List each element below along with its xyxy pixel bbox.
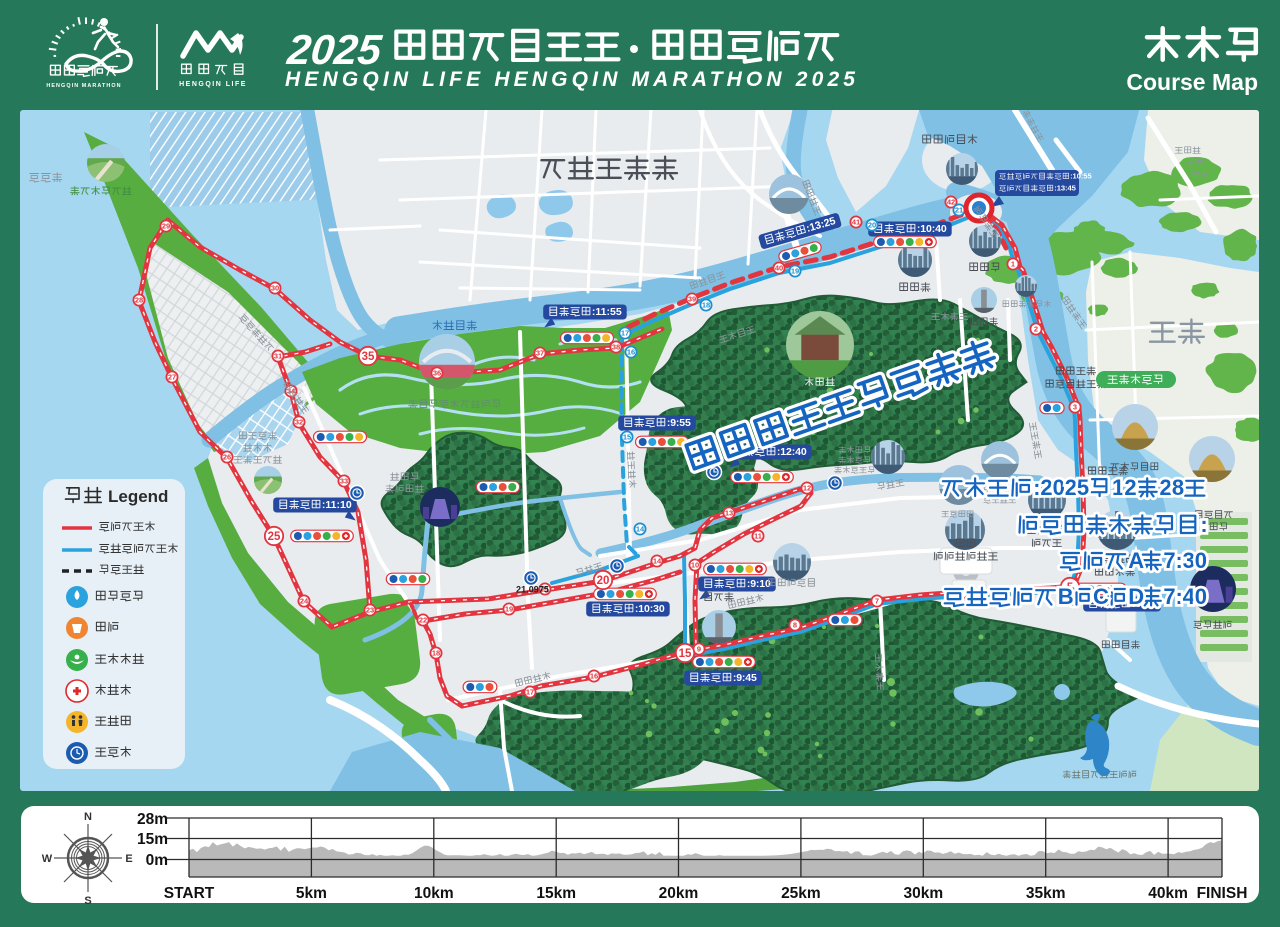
svg-text:2025: 2025: [284, 26, 384, 73]
svg-text:S: S: [84, 895, 91, 907]
svg-text:31: 31: [274, 352, 282, 361]
svg-text:0m: 0m: [146, 852, 168, 869]
svg-text:15m: 15m: [137, 831, 168, 848]
svg-text:10km: 10km: [414, 885, 454, 902]
svg-text:HENGQIN LIFE: HENGQIN LIFE: [179, 81, 247, 88]
svg-text:28: 28: [1160, 475, 1185, 500]
svg-text::9:10: :9:10: [747, 578, 771, 590]
svg-text:N: N: [84, 811, 92, 823]
svg-text:25km: 25km: [781, 885, 821, 902]
svg-text:11: 11: [754, 532, 762, 541]
svg-text:26: 26: [223, 453, 231, 462]
svg-text::12:40: :12:40: [777, 446, 807, 458]
svg-text:Course Map: Course Map: [1126, 69, 1258, 95]
svg-text:2: 2: [1034, 325, 1038, 334]
svg-text:32: 32: [295, 418, 303, 427]
svg-text:7:40: 7:40: [1163, 584, 1207, 609]
svg-text:7: 7: [875, 597, 879, 606]
svg-text:19: 19: [505, 605, 513, 614]
svg-text:35: 35: [362, 351, 375, 363]
svg-text:39: 39: [688, 295, 696, 304]
svg-text::11:55: :11:55: [592, 306, 622, 318]
svg-text:A: A: [1128, 548, 1144, 573]
svg-text:25: 25: [268, 531, 281, 543]
svg-text:23: 23: [366, 606, 374, 615]
svg-text:20: 20: [597, 575, 610, 587]
svg-text:28m: 28m: [137, 811, 168, 828]
svg-text:START: START: [164, 885, 215, 902]
svg-text:21: 21: [955, 206, 963, 215]
svg-text:28: 28: [135, 296, 143, 305]
svg-text::2025: :2025: [1033, 475, 1089, 500]
svg-text::10:55: :10:55: [1070, 172, 1092, 181]
svg-text:12: 12: [1112, 475, 1137, 500]
svg-text:41: 41: [852, 218, 860, 227]
svg-text:30km: 30km: [903, 885, 943, 902]
svg-text:18: 18: [702, 301, 710, 310]
svg-text::13:45: :13:45: [1054, 184, 1076, 193]
svg-text:10: 10: [691, 561, 699, 570]
svg-text:8: 8: [793, 621, 797, 630]
svg-text::11:10: :11:10: [322, 499, 352, 511]
svg-text::9:55: :9:55: [667, 417, 691, 429]
svg-text::10:30: :10:30: [635, 603, 665, 615]
svg-text:27: 27: [168, 373, 176, 382]
svg-text:40km: 40km: [1148, 885, 1188, 902]
svg-text:20km: 20km: [659, 885, 699, 902]
svg-text:20: 20: [868, 221, 876, 230]
svg-text::10:40: :10:40: [917, 223, 947, 235]
svg-text:15: 15: [679, 648, 692, 660]
svg-text:FINISH: FINISH: [1197, 885, 1248, 902]
svg-text:14: 14: [653, 557, 662, 566]
svg-text:Legend: Legend: [108, 487, 168, 506]
svg-text:21.0975: 21.0975: [516, 584, 549, 594]
svg-text:24: 24: [300, 597, 309, 606]
svg-text:12: 12: [803, 484, 811, 493]
svg-text:9: 9: [697, 645, 701, 654]
svg-text:38: 38: [612, 343, 620, 352]
svg-text:5km: 5km: [296, 885, 327, 902]
svg-text:17: 17: [526, 688, 534, 697]
svg-text:14: 14: [636, 525, 645, 534]
svg-text:7:30: 7:30: [1163, 548, 1207, 573]
svg-text:16: 16: [627, 348, 635, 357]
svg-text:C: C: [1093, 584, 1109, 609]
svg-text:37: 37: [536, 349, 544, 358]
svg-text:3: 3: [1073, 403, 1077, 412]
svg-text:1: 1: [1011, 260, 1015, 269]
svg-text::: :: [1200, 512, 1207, 537]
svg-text:15: 15: [623, 433, 631, 442]
svg-text:HENGQIN MARATHON: HENGQIN MARATHON: [46, 83, 121, 89]
svg-text:22: 22: [419, 616, 427, 625]
svg-text:W: W: [42, 853, 53, 865]
svg-text:35km: 35km: [1026, 885, 1066, 902]
svg-text:D: D: [1128, 584, 1144, 609]
svg-text:18: 18: [432, 649, 440, 658]
svg-text:33: 33: [340, 477, 348, 486]
svg-text:13: 13: [725, 509, 733, 518]
svg-text:17: 17: [621, 329, 629, 338]
svg-text:16: 16: [590, 672, 598, 681]
svg-text:29: 29: [162, 222, 170, 231]
svg-text:30: 30: [271, 284, 279, 293]
svg-text::9:45: :9:45: [733, 672, 757, 684]
svg-text:19: 19: [791, 267, 799, 276]
svg-text:B: B: [1058, 584, 1074, 609]
svg-text:36: 36: [433, 369, 441, 378]
svg-text:15km: 15km: [536, 885, 576, 902]
svg-text:E: E: [125, 853, 132, 865]
svg-text:40: 40: [775, 264, 783, 273]
